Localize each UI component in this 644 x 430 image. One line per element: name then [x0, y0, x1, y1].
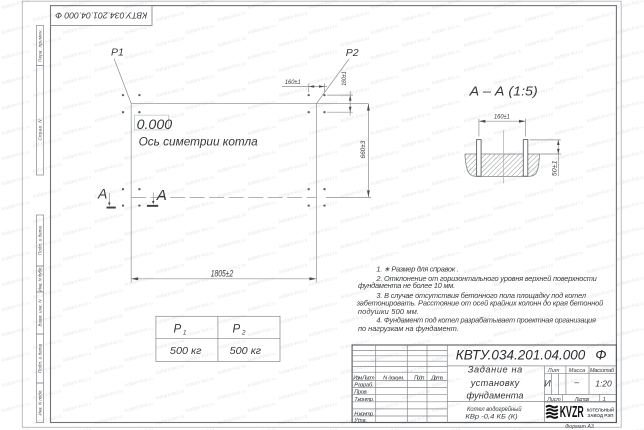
svg-text:по нагрузкам на фундамент.: по нагрузкам на фундамент.: [358, 324, 459, 333]
svg-text:Ф: Ф: [595, 348, 606, 364]
svg-text:Р1: Р1: [111, 47, 124, 59]
svg-text:А – А (1:5): А – А (1:5): [469, 84, 538, 99]
svg-text:Перв. примен.: Перв. примен.: [38, 29, 43, 62]
svg-text:фундамента: фундамента: [467, 390, 524, 400]
svg-text:Лит: Лит: [547, 368, 560, 374]
svg-text:0.000: 0.000: [137, 117, 173, 133]
svg-text:1. ∗ Размер для справок .: 1. ∗ Размер для справок .: [376, 264, 458, 273]
svg-text:Задание на: Задание на: [468, 365, 523, 375]
svg-text:А: А: [97, 186, 107, 202]
svg-text:Дата: Дата: [430, 375, 443, 381]
svg-text:Котел водогрейный: Котел водогрейный: [467, 405, 522, 413]
svg-text:Подп.: Подп.: [414, 375, 425, 381]
svg-text:фундамента не более 10 мм.: фундамента не более 10 мм.: [358, 281, 455, 290]
svg-text:Масштаб: Масштаб: [590, 368, 615, 374]
svg-text:КВТУ.034.201.04.000 Ф: КВТУ.034.201.04.000 Ф: [55, 11, 147, 21]
svg-text:Подп. и дата: Подп. и дата: [38, 344, 43, 373]
svg-text:подушки 500 мм.: подушки 500 мм.: [358, 307, 419, 316]
svg-text:Взам. инв. N: Взам. инв. N: [38, 299, 43, 327]
svg-text:Т.контр.: Т.контр.: [354, 397, 374, 403]
svg-text:Листов: Листов: [574, 397, 589, 403]
svg-text:И: И: [544, 378, 551, 388]
svg-text:Н.контр.: Н.контр.: [354, 412, 374, 418]
svg-text:установку: установку: [470, 378, 521, 388]
svg-text:Р2: Р2: [346, 47, 359, 59]
svg-text:Инв. N подл.: Инв. N подл.: [38, 390, 43, 416]
svg-text:Масса: Масса: [569, 368, 586, 374]
svg-text:Утв.: Утв.: [353, 418, 367, 424]
svg-text:1:20: 1:20: [595, 378, 612, 388]
svg-text:Ось симетрии котла: Ось симетрии котла: [139, 134, 259, 148]
svg-text:КВр -0,4 КБ (К): КВр -0,4 КБ (К): [465, 413, 517, 420]
svg-text:ЗАВОД РЭП: ЗАВОД РЭП: [587, 413, 614, 419]
svg-text:Лист: Лист: [546, 397, 561, 403]
svg-text:Справ. N: Справ. N: [38, 119, 43, 141]
svg-text:KVZR: KVZR: [560, 404, 584, 421]
svg-text:1805±2: 1805±2: [211, 268, 234, 278]
svg-text:Подп. и дата: Подп. и дата: [38, 226, 43, 255]
svg-text:160±1: 160±1: [494, 114, 510, 120]
svg-text:КВТУ.034.201.04.000: КВТУ.034.201.04.000: [456, 348, 586, 364]
svg-text:Пров.: Пров.: [354, 390, 368, 396]
svg-text:660±3: 660±3: [360, 140, 367, 158]
svg-text:500 кг: 500 кг: [170, 346, 202, 357]
svg-text:Инв. N дубл.: Инв. N дубл.: [38, 267, 43, 292]
svg-text:50±1: 50±1: [552, 160, 558, 176]
svg-text:160±1: 160±1: [342, 71, 348, 86]
svg-text:160±1: 160±1: [285, 80, 301, 86]
svg-text:–: –: [573, 377, 579, 387]
svg-text:1: 1: [603, 397, 606, 403]
svg-text:А: А: [156, 187, 167, 204]
svg-text:N докум.: N докум.: [383, 375, 404, 381]
svg-text:Изм.Лист: Изм.Лист: [353, 375, 375, 381]
svg-text:Формат А3: Формат А3: [565, 424, 594, 430]
svg-text:Разраб.: Разраб.: [354, 383, 373, 389]
svg-text:500 кг: 500 кг: [230, 346, 262, 357]
